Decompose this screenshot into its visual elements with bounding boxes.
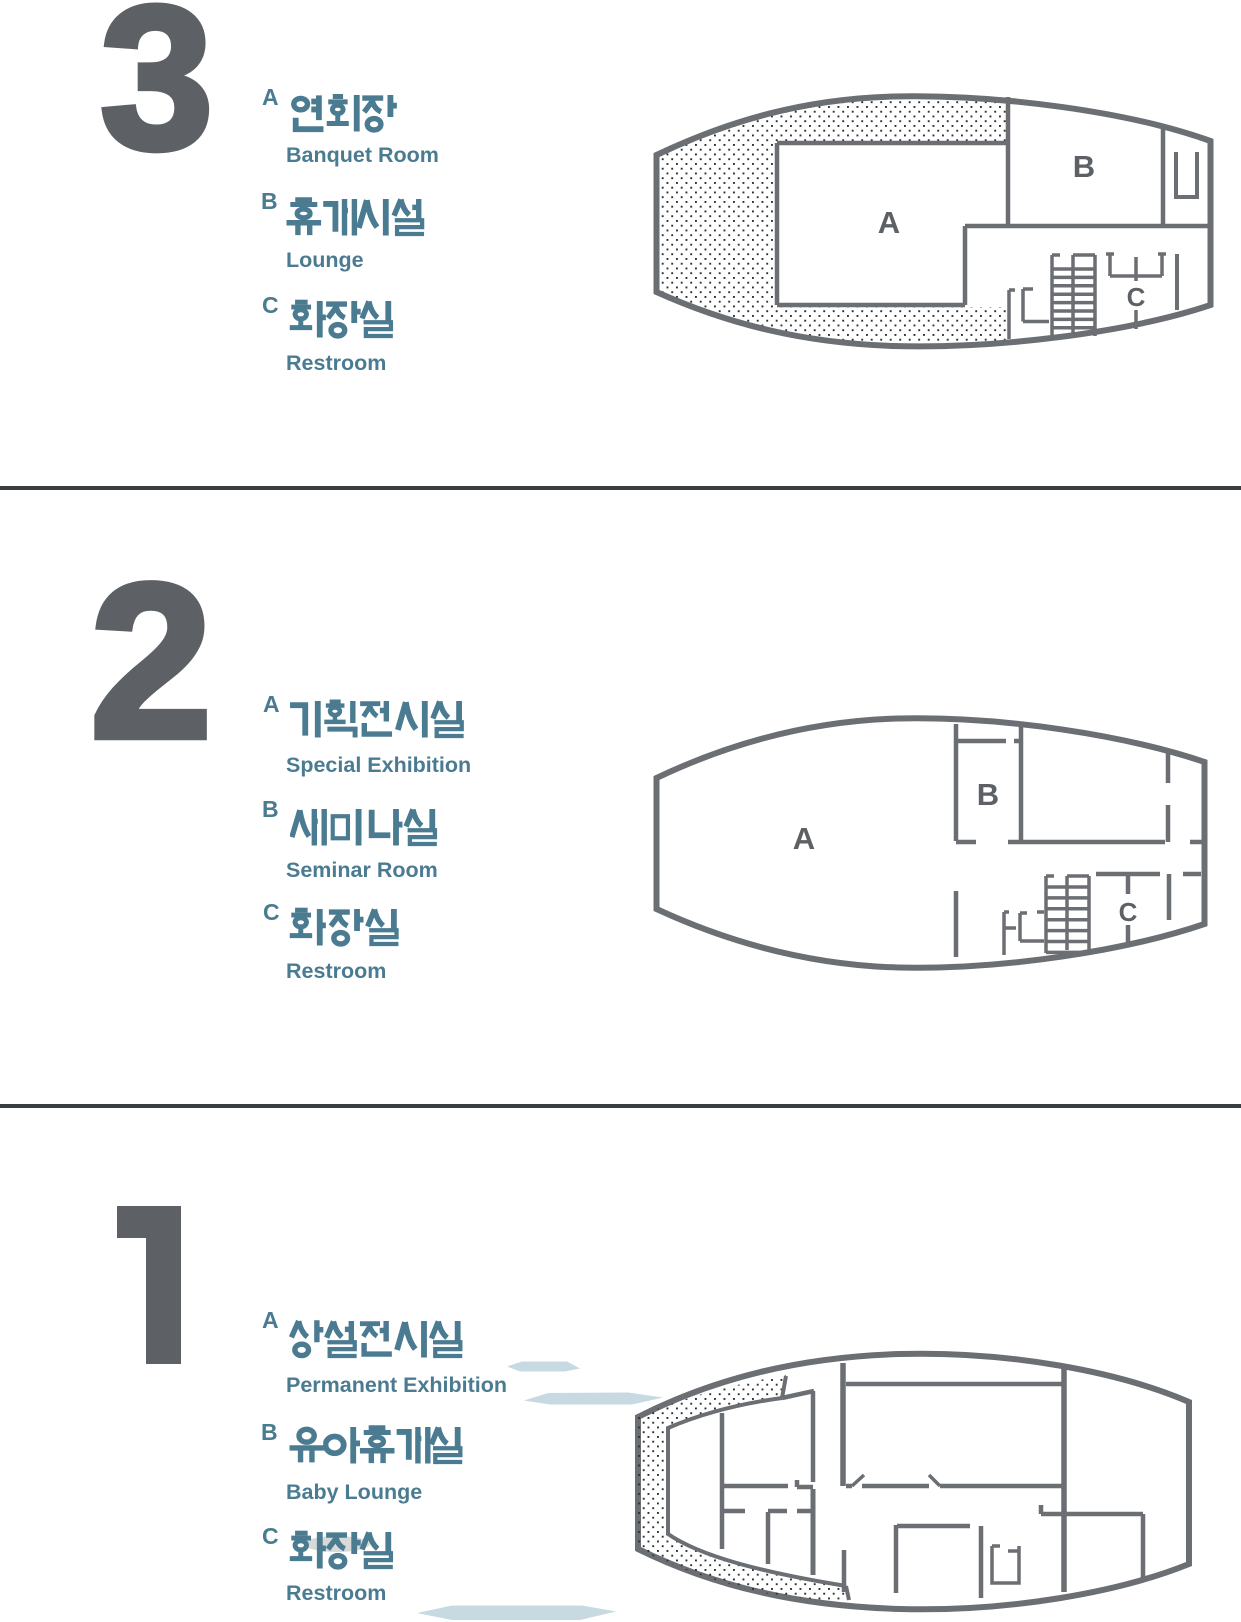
svg-text:A: A xyxy=(878,205,900,240)
svg-text:B: B xyxy=(977,777,999,812)
svg-text:B: B xyxy=(1073,149,1095,184)
svg-text:C: C xyxy=(1119,897,1138,927)
svg-text:C: C xyxy=(1127,282,1146,312)
svg-text:A: A xyxy=(793,821,815,856)
